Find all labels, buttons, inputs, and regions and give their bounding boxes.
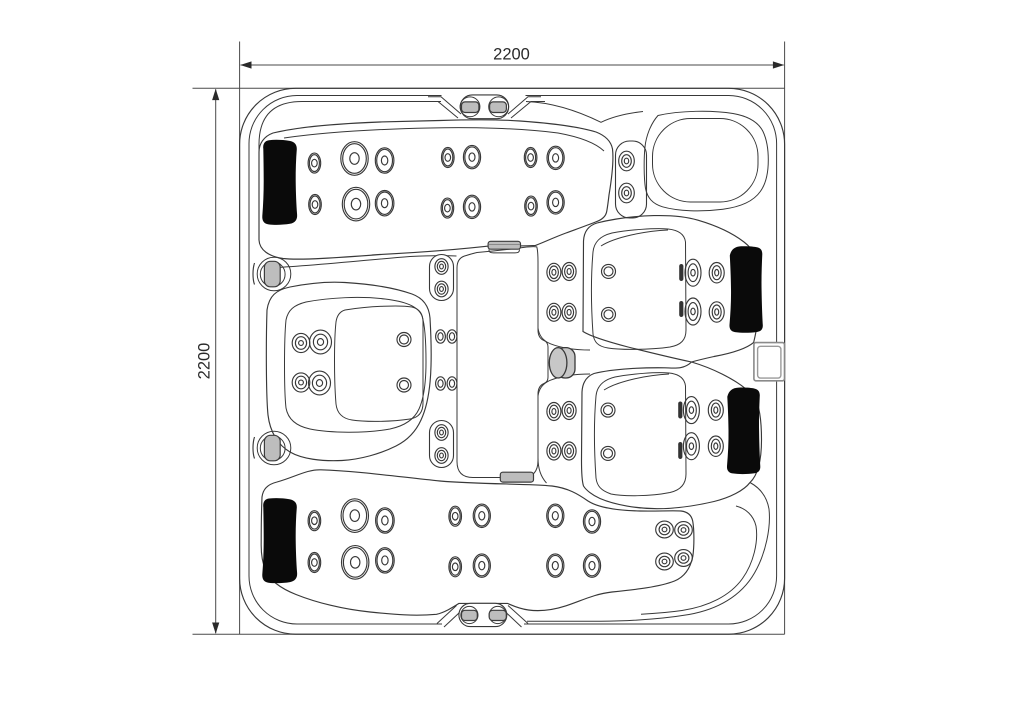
svg-text:2200: 2200 [493, 46, 530, 64]
svg-text:2200: 2200 [196, 343, 214, 380]
